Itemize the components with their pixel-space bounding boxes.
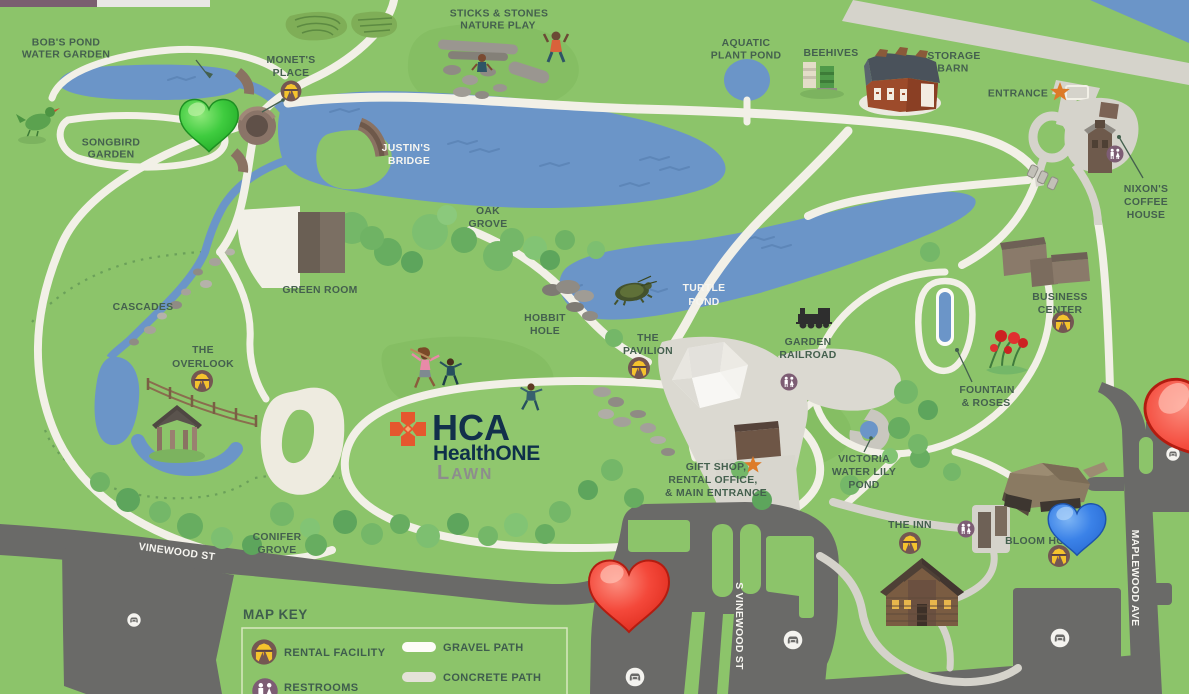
svg-text:S VINEWOOD ST: S VINEWOOD ST — [733, 582, 744, 670]
svg-text:OVERLOOK: OVERLOOK — [172, 359, 234, 370]
svg-text:GREEN ROOM: GREEN ROOM — [282, 285, 357, 296]
svg-text:NIXON'S: NIXON'S — [1124, 184, 1168, 195]
svg-text:COFFEE: COFFEE — [1124, 197, 1168, 208]
svg-text:GROVE: GROVE — [468, 219, 507, 230]
svg-text:PAVILION: PAVILION — [623, 346, 673, 357]
svg-text:WATER GARDEN: WATER GARDEN — [22, 50, 110, 61]
svg-text:RENTAL FACILITY: RENTAL FACILITY — [284, 647, 386, 659]
svg-text:NATURE PLAY: NATURE PLAY — [460, 21, 535, 32]
svg-text:OAK: OAK — [476, 206, 500, 217]
svg-text:PLACE: PLACE — [273, 68, 310, 79]
svg-text:STORAGE: STORAGE — [927, 51, 980, 62]
svg-text:BUSINESS: BUSINESS — [1032, 292, 1088, 303]
svg-text:POND: POND — [848, 480, 879, 491]
svg-text:HOUSE: HOUSE — [1127, 210, 1165, 221]
svg-text:LAWN: LAWN — [437, 462, 493, 484]
svg-text:MAP KEY: MAP KEY — [243, 607, 308, 622]
svg-text:GARDEN: GARDEN — [785, 337, 832, 348]
svg-text:CENTER: CENTER — [1038, 305, 1083, 316]
svg-text:HOLE: HOLE — [530, 326, 560, 337]
svg-text:AQUATIC: AQUATIC — [722, 38, 771, 49]
svg-text:JUSTIN'S: JUSTIN'S — [382, 143, 431, 154]
svg-text:RAILROAD: RAILROAD — [779, 350, 836, 361]
svg-text:RENTAL OFFICE,: RENTAL OFFICE, — [668, 475, 757, 486]
svg-text:STICKS & STONES: STICKS & STONES — [450, 9, 548, 20]
svg-text:& ROSES: & ROSES — [962, 398, 1011, 409]
svg-text:THE INN: THE INN — [888, 520, 932, 531]
svg-text:VICTORIA: VICTORIA — [838, 454, 890, 465]
svg-text:GIFT SHOP,: GIFT SHOP, — [686, 462, 747, 473]
svg-text:MAPLEWOOD AVE: MAPLEWOOD AVE — [1129, 530, 1140, 627]
svg-text:MONET'S: MONET'S — [266, 55, 315, 66]
svg-text:SONGBIRD: SONGBIRD — [82, 138, 141, 149]
svg-text:BOB'S POND: BOB'S POND — [32, 38, 101, 49]
svg-text:ENTRANCE: ENTRANCE — [988, 89, 1048, 100]
svg-text:FOUNTAIN: FOUNTAIN — [959, 385, 1014, 396]
svg-text:BEEHIVES: BEEHIVES — [804, 48, 859, 59]
svg-text:GRAVEL PATH: GRAVEL PATH — [443, 642, 524, 654]
svg-text:THE: THE — [192, 345, 214, 356]
svg-text:& MAIN ENTRANCE: & MAIN ENTRANCE — [665, 488, 767, 499]
svg-text:THE: THE — [637, 333, 659, 344]
svg-text:CASCADES: CASCADES — [113, 302, 174, 313]
svg-text:BRIDGE: BRIDGE — [388, 156, 430, 167]
svg-text:BARN: BARN — [937, 64, 968, 75]
svg-text:POND: POND — [688, 297, 719, 308]
svg-text:TURTLE: TURTLE — [683, 283, 726, 294]
svg-text:CONCRETE PATH: CONCRETE PATH — [443, 672, 541, 684]
svg-text:WATER LILY: WATER LILY — [832, 467, 896, 478]
svg-text:GROVE: GROVE — [257, 545, 296, 556]
svg-text:GARDEN: GARDEN — [88, 150, 135, 161]
svg-text:RESTROOMS: RESTROOMS — [284, 682, 359, 694]
svg-text:CONIFER: CONIFER — [253, 532, 302, 543]
svg-text:HOBBIT: HOBBIT — [524, 313, 566, 324]
svg-text:PLANT POND: PLANT POND — [711, 51, 782, 62]
